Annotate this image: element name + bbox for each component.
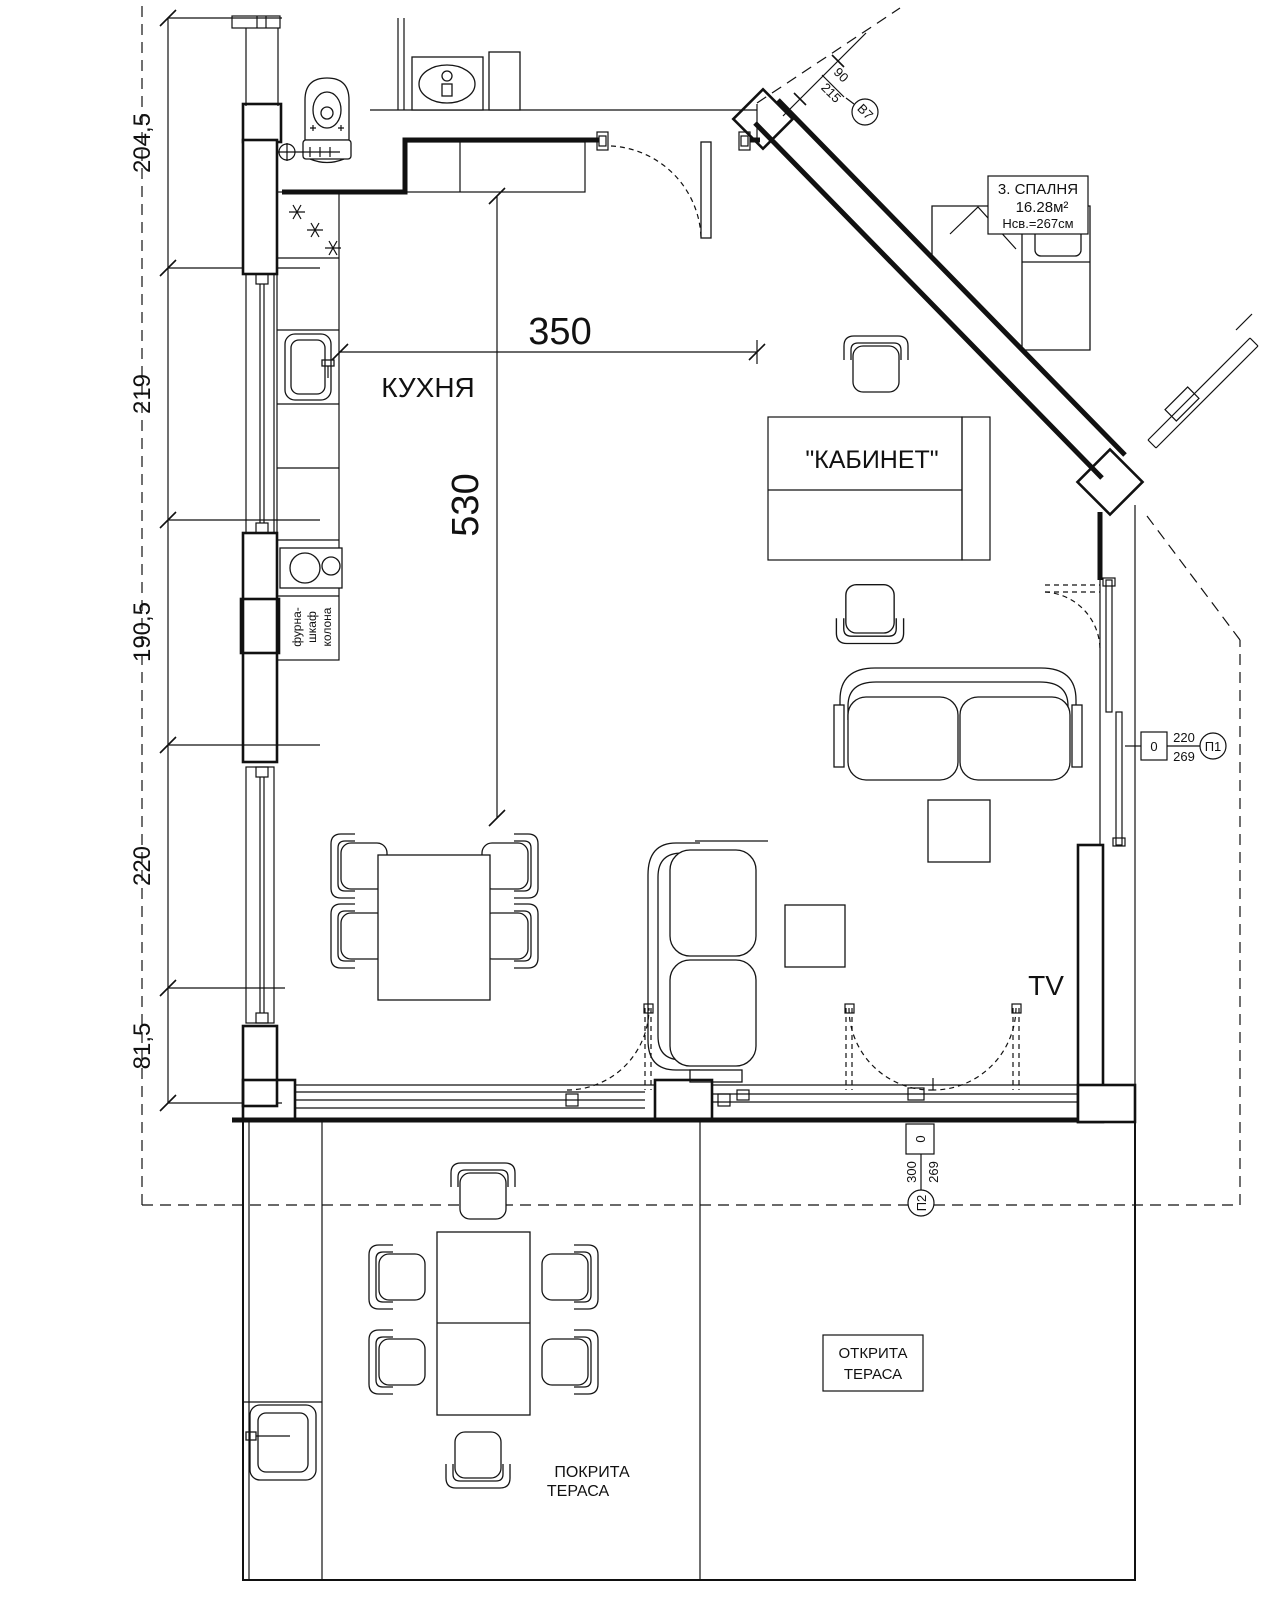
- p1-height: 269: [1173, 749, 1195, 764]
- side-table: [928, 800, 990, 862]
- covered-terrace-label-1: ПОКРИТА: [554, 1464, 630, 1481]
- right-wall: 0 220 269 П1: [1045, 505, 1226, 1122]
- terrace-chair: [451, 1163, 515, 1219]
- terrace-chair: [369, 1330, 425, 1394]
- terrace-chair: [369, 1245, 425, 1309]
- office-chair: [844, 336, 908, 392]
- terrace-chair: [446, 1432, 510, 1488]
- dining-window: [246, 767, 274, 1023]
- bedroom-area: 16.28м²: [1016, 199, 1069, 216]
- floor-plan-svg: 204,5 219 190,5 220 81,5 350 530: [0, 0, 1280, 1600]
- office-area: "КАБИНЕТ": [768, 336, 990, 560]
- living-area: TV: [648, 585, 1082, 1082]
- terrace-chair: [542, 1330, 598, 1394]
- dining-table: [378, 855, 490, 1000]
- kitchen-window: [246, 274, 274, 533]
- oven-label-3: колона: [320, 607, 334, 646]
- bedroom-height: Нсв.=267см: [1002, 216, 1073, 231]
- hooks-symbol: [289, 205, 341, 255]
- bedroom-title: 3. СПАЛНЯ: [998, 181, 1078, 198]
- tv-label: TV: [1028, 970, 1064, 1001]
- sofa-horizontal: [834, 668, 1082, 780]
- p2-offset: 0: [913, 1135, 928, 1142]
- dining-area: [331, 834, 538, 1000]
- dim-350: 350: [528, 311, 591, 353]
- open-terrace-label-1: ОТКРИТА: [838, 1345, 907, 1362]
- armchair: [836, 585, 903, 644]
- floor-plan-page: 204,5 219 190,5 220 81,5 350 530: [0, 0, 1280, 1600]
- covered-terrace-label-2: ТЕРАСА: [547, 1483, 610, 1500]
- window-b7-marker: 90 215 В7: [783, 33, 878, 125]
- terrace-chair: [542, 1245, 598, 1309]
- dimension-350: 350: [332, 311, 765, 364]
- dim-530: 530: [445, 473, 487, 536]
- cabinet-label: "КАБИНЕТ": [805, 446, 938, 474]
- p1-tag: П1: [1205, 739, 1222, 754]
- coffee-table: [785, 905, 845, 967]
- oven-label-1: фурна-: [290, 607, 304, 647]
- entrance-door: [597, 104, 757, 238]
- open-terrace-label-2: ТЕРАСА: [844, 1366, 902, 1383]
- p2-width: 300: [904, 1161, 919, 1183]
- dim-204-5: 204,5: [129, 113, 156, 173]
- kitchen-label: КУХНЯ: [381, 372, 475, 403]
- terrace-dining: [369, 1163, 598, 1488]
- open-terrace-box: ОТКРИТА ТЕРАСА: [823, 1335, 923, 1391]
- door-p1-marker: 0 220 269 П1: [1125, 730, 1226, 764]
- neighbor-objects: [1148, 314, 1258, 448]
- folding-doors: [567, 1004, 1021, 1090]
- dimension-530: 530: [445, 188, 505, 826]
- door-p2-marker: 0 300 269 П2: [904, 1124, 941, 1216]
- left-wall: [241, 140, 279, 1106]
- dim-219: 219: [129, 374, 156, 414]
- oven-label-2: шкаф: [305, 611, 319, 643]
- p2-tag: П2: [914, 1195, 929, 1212]
- sofa-vertical: [648, 841, 768, 1082]
- outdoor-sink: [246, 1405, 316, 1480]
- b7-width: 90: [831, 64, 852, 85]
- dim-220: 220: [129, 846, 156, 886]
- terrace: ПОКРИТА ТЕРАСА ОТКРИТА ТЕРАСА: [243, 1120, 1135, 1580]
- dim-81-5: 81,5: [129, 1023, 156, 1070]
- p2-height: 269: [926, 1161, 941, 1183]
- p1-width: 220: [1173, 730, 1195, 745]
- p1-offset: 0: [1150, 739, 1157, 754]
- dim-190-5: 190,5: [129, 602, 156, 662]
- kitchen: фурна- шкаф колона КУХНЯ: [277, 140, 760, 660]
